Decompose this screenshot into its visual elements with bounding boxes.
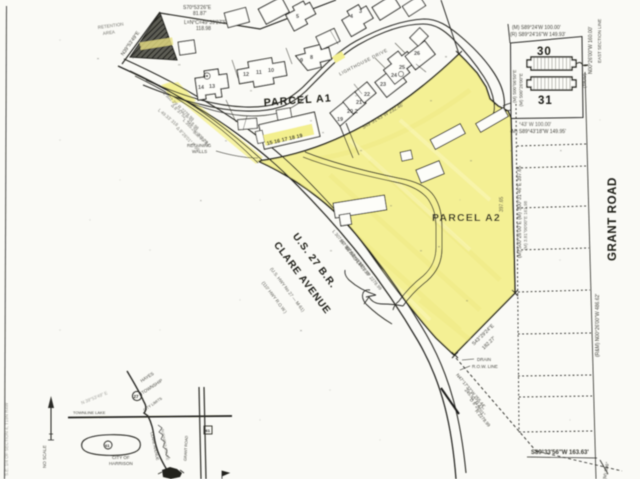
svg-text:(R&M) N00°26'00"W 486.62': (R&M) N00°26'00"W 486.62' — [595, 294, 601, 357]
svg-text:14: 14 — [198, 85, 205, 91]
svg-text:PARCEL A2: PARCEL A2 — [432, 212, 501, 224]
svg-text:3: 3 — [359, 9, 362, 15]
svg-text:8: 8 — [310, 55, 313, 61]
svg-text:12: 12 — [243, 72, 249, 78]
svg-text:(M) S00°06'50"E: (M) S00°06'50"E — [512, 70, 517, 103]
svg-text:22: 22 — [364, 92, 370, 98]
svg-text:R.O.W. LINE: R.O.W. LINE — [472, 364, 498, 369]
svg-text:27: 27 — [134, 394, 140, 399]
svg-text:13: 13 — [209, 84, 215, 90]
svg-text:(TRAV): (TRAV) — [582, 73, 587, 88]
svg-text:(M) S00°26'00"E: (M) S00°26'00"E — [519, 73, 524, 106]
svg-text:11: 11 — [256, 70, 262, 76]
svg-text:(M) S89°43'18"W 149.95': (M) S89°43'18"W 149.95' — [510, 129, 566, 135]
svg-text:N00°26'00"W 160.00': N00°26'00"W 160.00' — [588, 27, 594, 74]
svg-text:81.87': 81.87' — [193, 11, 207, 17]
svg-text:S89°33'56"W 163.63': S89°33'56"W 163.63' — [531, 450, 589, 456]
svg-text:31: 31 — [538, 95, 553, 107]
svg-text:(R) S89°24'16"W 149.93': (R) S89°24'16"W 149.93' — [510, 32, 565, 38]
svg-text:118.98: 118.98 — [196, 26, 211, 32]
svg-text:30: 30 — [537, 46, 552, 58]
svg-text:CITY OF: CITY OF — [112, 455, 130, 460]
svg-text:WALLS: WALLS — [192, 149, 207, 154]
svg-text:19: 19 — [337, 117, 343, 123]
svg-text:25: 25 — [399, 65, 405, 71]
svg-text:(M) S89°24'W 100.00': (M) S89°24'W 100.00' — [512, 25, 561, 31]
svg-text:24: 24 — [391, 73, 398, 79]
svg-text:HARRISON: HARRISON — [109, 461, 133, 466]
svg-text:TOWNLINE LAKE: TOWNLINE LAKE — [73, 410, 106, 415]
svg-text:20 2: 20 2 — [347, 109, 358, 115]
svg-text:23: 23 — [380, 82, 386, 88]
svg-text:61: 61 — [206, 428, 211, 433]
svg-text:397.65: 397.65 — [499, 196, 505, 212]
svg-text:NO SCALE: NO SCALE — [42, 445, 47, 468]
svg-text:EAST SECTION LINE: EAST SECTION LINE — [597, 19, 602, 63]
svg-text:26: 26 — [414, 51, 420, 57]
svg-text:DRAIN: DRAIN — [477, 357, 491, 362]
svg-text:61: 61 — [105, 443, 110, 448]
svg-text:S.E. 1/4 OF SECTION 4, T19N R4: S.E. 1/4 OF SECTION 4, T19N R4W — [4, 402, 9, 476]
svg-text:21: 21 — [356, 100, 362, 106]
svg-text:GRANT ROAD: GRANT ROAD — [607, 177, 619, 261]
svg-text:9: 9 — [300, 58, 303, 64]
svg-text:5: 5 — [296, 14, 299, 20]
svg-text:°43' W 100.00': °43' W 100.00' — [519, 122, 551, 128]
svg-text:10: 10 — [268, 68, 274, 74]
